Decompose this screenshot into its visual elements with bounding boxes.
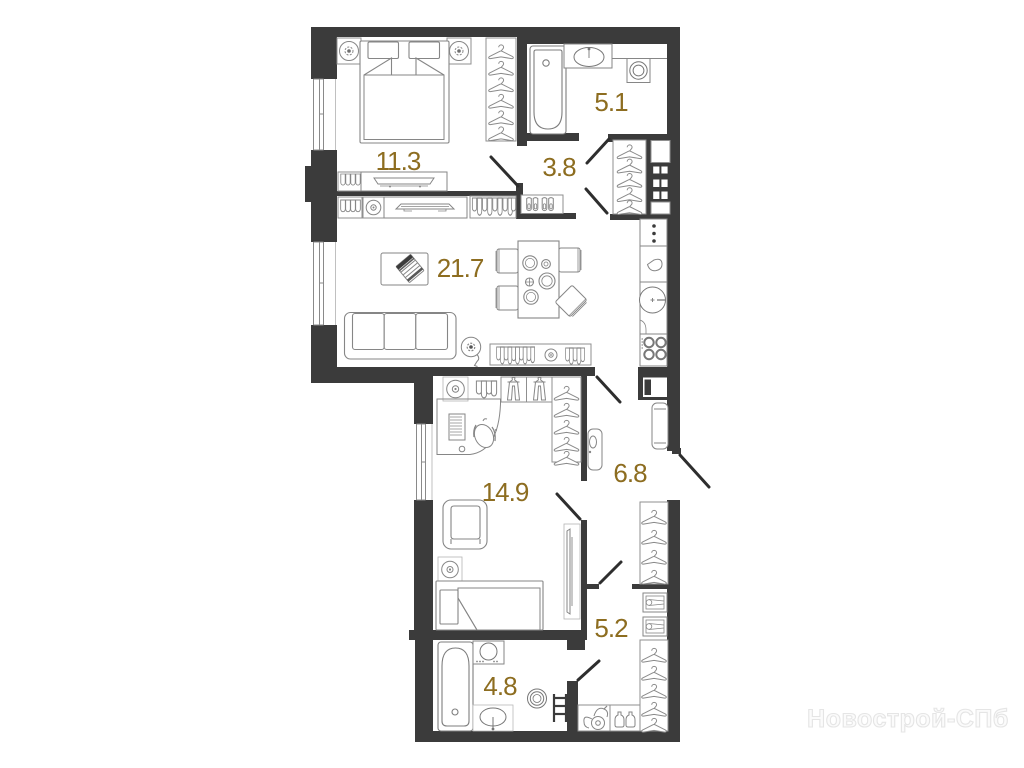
svg-text:5.2: 5.2 xyxy=(594,613,628,643)
svg-text:5.1: 5.1 xyxy=(594,87,628,117)
svg-text:4.8: 4.8 xyxy=(483,671,517,701)
svg-text:6.8: 6.8 xyxy=(613,458,647,488)
svg-text:3.8: 3.8 xyxy=(542,152,576,182)
svg-text:21.7: 21.7 xyxy=(437,253,484,283)
svg-text:11.3: 11.3 xyxy=(376,146,421,176)
svg-text:Новострой-СПб: Новострой-СПб xyxy=(807,705,1009,733)
svg-text:14.9: 14.9 xyxy=(482,477,529,507)
